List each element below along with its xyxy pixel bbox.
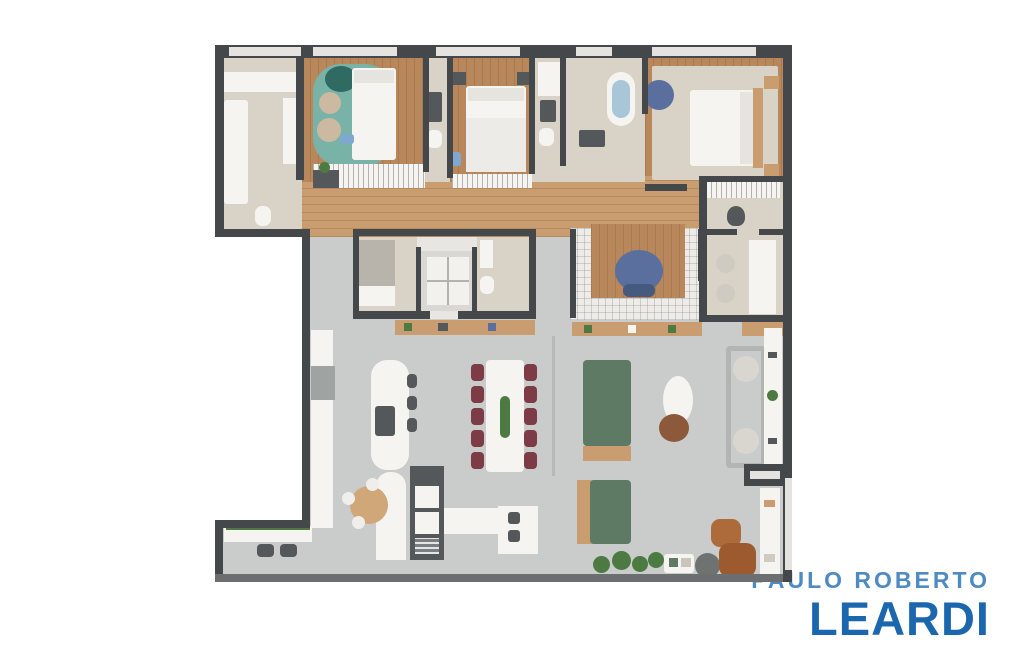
master-armchair-blue [644, 80, 674, 110]
window-top-1 [229, 47, 301, 56]
dining-chair-r4 [524, 430, 537, 447]
bedroom2-nightstand-left [453, 72, 466, 85]
wall-bedroom1-west [296, 58, 304, 180]
master-bed-pillows [740, 92, 753, 164]
dining-chair-r1 [524, 364, 537, 381]
wall-left-upper [215, 45, 224, 237]
wall-spine-west [302, 229, 310, 528]
dining-chair-l3 [471, 408, 484, 425]
office-desk [749, 240, 776, 314]
wc2-sink [480, 240, 493, 268]
kitchen-stool-1 [407, 374, 417, 388]
bedroom1-bed-pillow [354, 70, 394, 83]
master-headboard [753, 88, 763, 168]
floorplan [0, 0, 1024, 655]
dining-chair-r2 [524, 386, 537, 403]
shelf-decor-2 [438, 323, 448, 331]
shelf-decor-5 [628, 325, 636, 333]
daybed-cushion-1 [733, 356, 759, 382]
bath2-fixture [540, 100, 556, 122]
wall-bath2-east [560, 58, 566, 166]
sink-chair-1 [508, 512, 520, 524]
sofa-green-south [590, 480, 631, 544]
wall-elevator-west [416, 247, 421, 313]
sofa-green-north-base [583, 446, 631, 461]
shelf-decor-4 [584, 325, 592, 333]
dining-chair-r3 [524, 408, 537, 425]
bedroom2-blanket [466, 118, 526, 172]
wall-bath1-south [215, 229, 310, 237]
breakfast-chair-1 [342, 492, 355, 505]
window-top-5 [652, 47, 756, 56]
kitchen-stool-2 [407, 396, 417, 410]
wall-office-south [703, 315, 785, 322]
dining-chair-l1 [471, 364, 484, 381]
bath2-toilet [539, 128, 554, 146]
laundry-machine [357, 286, 395, 306]
bath1-toilet [255, 206, 271, 226]
wall-masterbath-east [642, 58, 648, 114]
wall-bedroom2-west [447, 58, 453, 178]
office-chair-1 [716, 254, 735, 273]
window-top-4 [576, 47, 612, 56]
side-pouf-brown [659, 414, 689, 442]
bedroom1-pouf-2 [317, 118, 341, 142]
dining-chair-l5 [471, 452, 484, 469]
kitchen-stool-3 [407, 418, 417, 432]
bath2-cabinet [538, 62, 560, 96]
breakfast-chair-3 [366, 478, 379, 491]
east-balcony-item-1 [764, 500, 775, 507]
plant-3 [632, 556, 648, 572]
kitchen-gray-cabinet [311, 366, 335, 400]
shelf-decor-6 [668, 325, 676, 333]
storage-counter [706, 182, 780, 198]
shelf-decor-3 [488, 323, 496, 331]
master-tub-water [612, 80, 630, 118]
mid-wc-toilet [427, 130, 442, 148]
dining-chair-l4 [471, 430, 484, 447]
master-vanity [579, 130, 605, 147]
wall-bottom [215, 574, 792, 582]
window-right [785, 478, 792, 570]
laundry-counter [357, 240, 395, 286]
wall-bedroom1-east [423, 58, 429, 172]
sideboard-item-1 [768, 352, 777, 358]
plant-2 [612, 551, 631, 570]
daybed-cushion-2 [733, 428, 759, 454]
balcony-stool-2 [280, 544, 297, 557]
elevator-line-h [427, 280, 469, 282]
kitchen-oven-2 [415, 512, 439, 534]
kitchen-vent [415, 538, 439, 554]
wall-midblock-north [353, 229, 535, 236]
wc2-toilet [480, 276, 494, 294]
sofa-green-north [583, 360, 631, 446]
door-gap-office [737, 229, 759, 235]
east-door-gap [750, 471, 780, 479]
wall-storage-west [699, 176, 707, 322]
plant-1 [593, 556, 610, 573]
bedroom1-blue-item [340, 134, 354, 144]
wall-midblock-west [353, 229, 359, 317]
dining-runner [500, 396, 510, 438]
kitchen-cooktop [375, 406, 395, 436]
brand-name-main: LEARDI [751, 595, 990, 642]
door-gap-lobby [430, 311, 458, 319]
office-chair-2 [716, 284, 735, 303]
curtain-divider [552, 336, 555, 476]
deck-daybed-base [623, 284, 655, 297]
window-top-2 [313, 47, 397, 56]
east-balcony-item-2 [764, 554, 775, 562]
wall-deck-west [570, 229, 576, 318]
wall-balcony-north [215, 520, 310, 528]
breakfast-chair-2 [352, 516, 365, 529]
kitchen-oven-1 [415, 486, 439, 508]
bedroom1-plant [319, 162, 330, 173]
bedroom2-wardrobe [452, 174, 532, 188]
sideboard-plant [767, 390, 778, 401]
wall-left-lower [215, 520, 223, 582]
bath1-counter [224, 72, 298, 92]
wall-elevator-east [472, 247, 477, 313]
master-nightstand-top [764, 76, 779, 89]
coffee-table-plant [669, 558, 678, 567]
sideboard-item-2 [768, 438, 777, 444]
wall-storage-north [699, 176, 785, 182]
armchair-rattan-2 [719, 543, 756, 577]
wall-wc2-east [529, 229, 536, 317]
plant-4 [648, 552, 664, 568]
coffee-table-tray [681, 558, 691, 567]
bedroom1-pouf-1 [319, 92, 341, 114]
bath1-shower [224, 100, 248, 204]
dining-chair-r5 [524, 452, 537, 469]
wall-bedroom2-east [529, 58, 535, 174]
kitchen-wall-counter [311, 330, 333, 528]
sink-chair-2 [508, 530, 520, 542]
shelf-band-left [395, 320, 535, 335]
wall-master-south [645, 184, 687, 191]
bedroom2-bed-pillow [468, 88, 524, 101]
storage-chair [727, 206, 745, 226]
shelf-decor-1 [404, 323, 412, 331]
balcony-stool-1 [257, 544, 274, 557]
dining-chair-l2 [471, 386, 484, 403]
kitchen-l-counter [444, 508, 506, 534]
window-top-3 [436, 47, 520, 56]
